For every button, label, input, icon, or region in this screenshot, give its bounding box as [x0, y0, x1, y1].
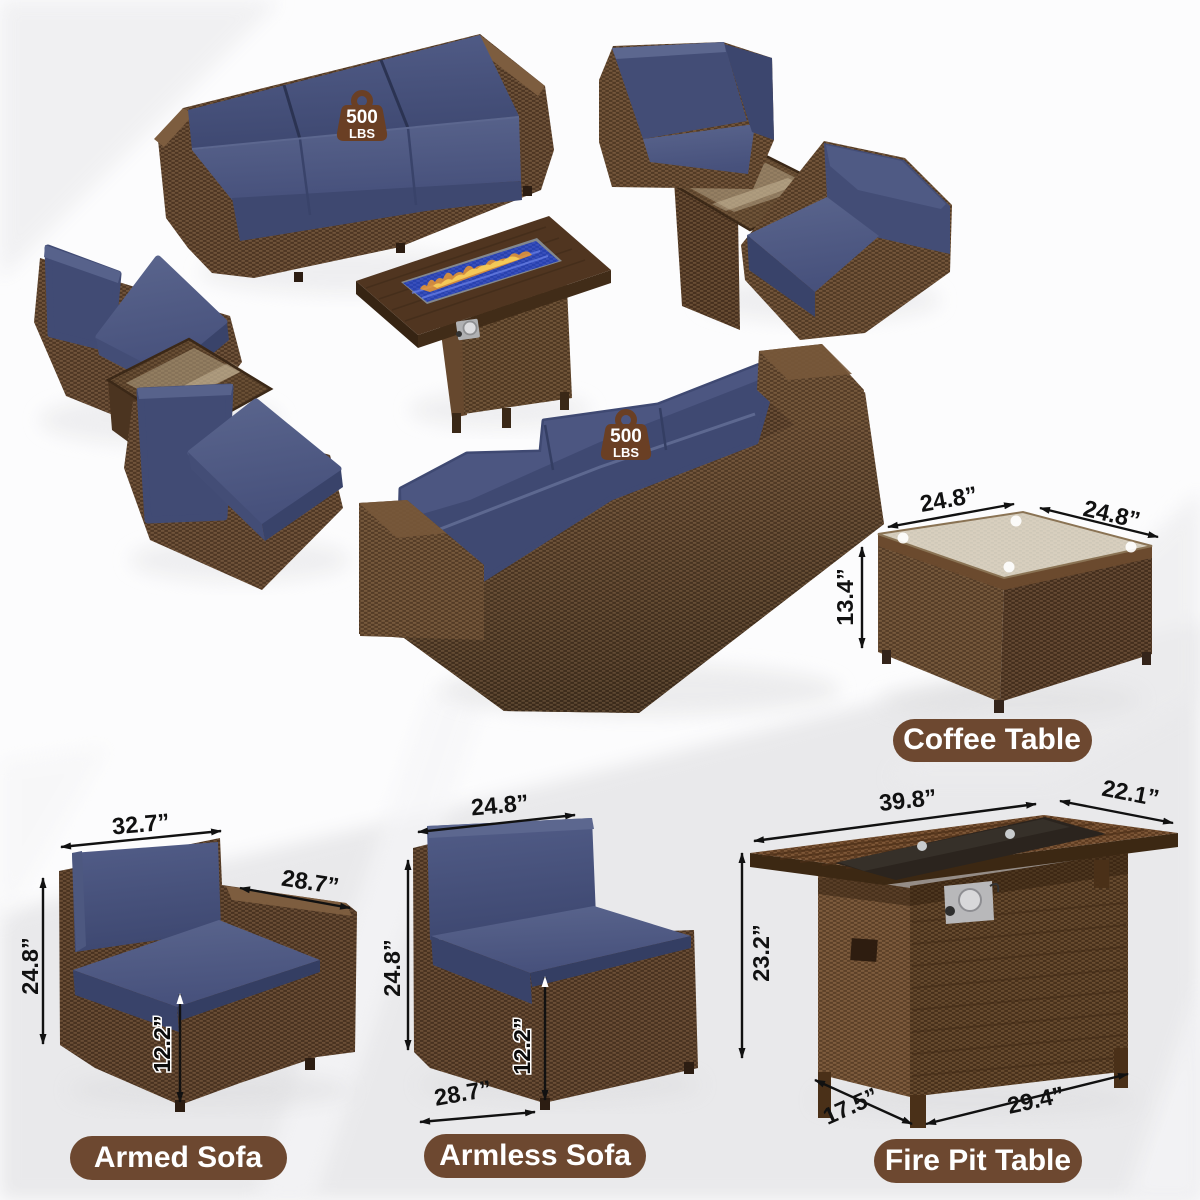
- svg-text:500: 500: [610, 426, 642, 447]
- svg-text:24.8”: 24.8”: [17, 937, 43, 995]
- svg-text:500: 500: [346, 107, 378, 128]
- svg-text:Armless Sofa: Armless Sofa: [439, 1139, 631, 1172]
- svg-text:23.2”: 23.2”: [748, 924, 774, 982]
- svg-text:24.8”: 24.8”: [379, 939, 405, 997]
- svg-text:32.7”: 32.7”: [111, 809, 171, 840]
- svg-text:LBS: LBS: [349, 126, 375, 141]
- svg-text:Armed Sofa: Armed Sofa: [94, 1141, 263, 1174]
- svg-text:12.2”: 12.2”: [509, 1017, 535, 1075]
- svg-text:12.2”: 12.2”: [149, 1015, 175, 1073]
- svg-text:Coffee Table: Coffee Table: [903, 723, 1081, 756]
- svg-text:LBS: LBS: [613, 445, 639, 460]
- svg-text:Fire Pit Table: Fire Pit Table: [885, 1144, 1071, 1177]
- svg-text:24.8”: 24.8”: [470, 790, 530, 821]
- svg-text:13.4”: 13.4”: [832, 568, 858, 626]
